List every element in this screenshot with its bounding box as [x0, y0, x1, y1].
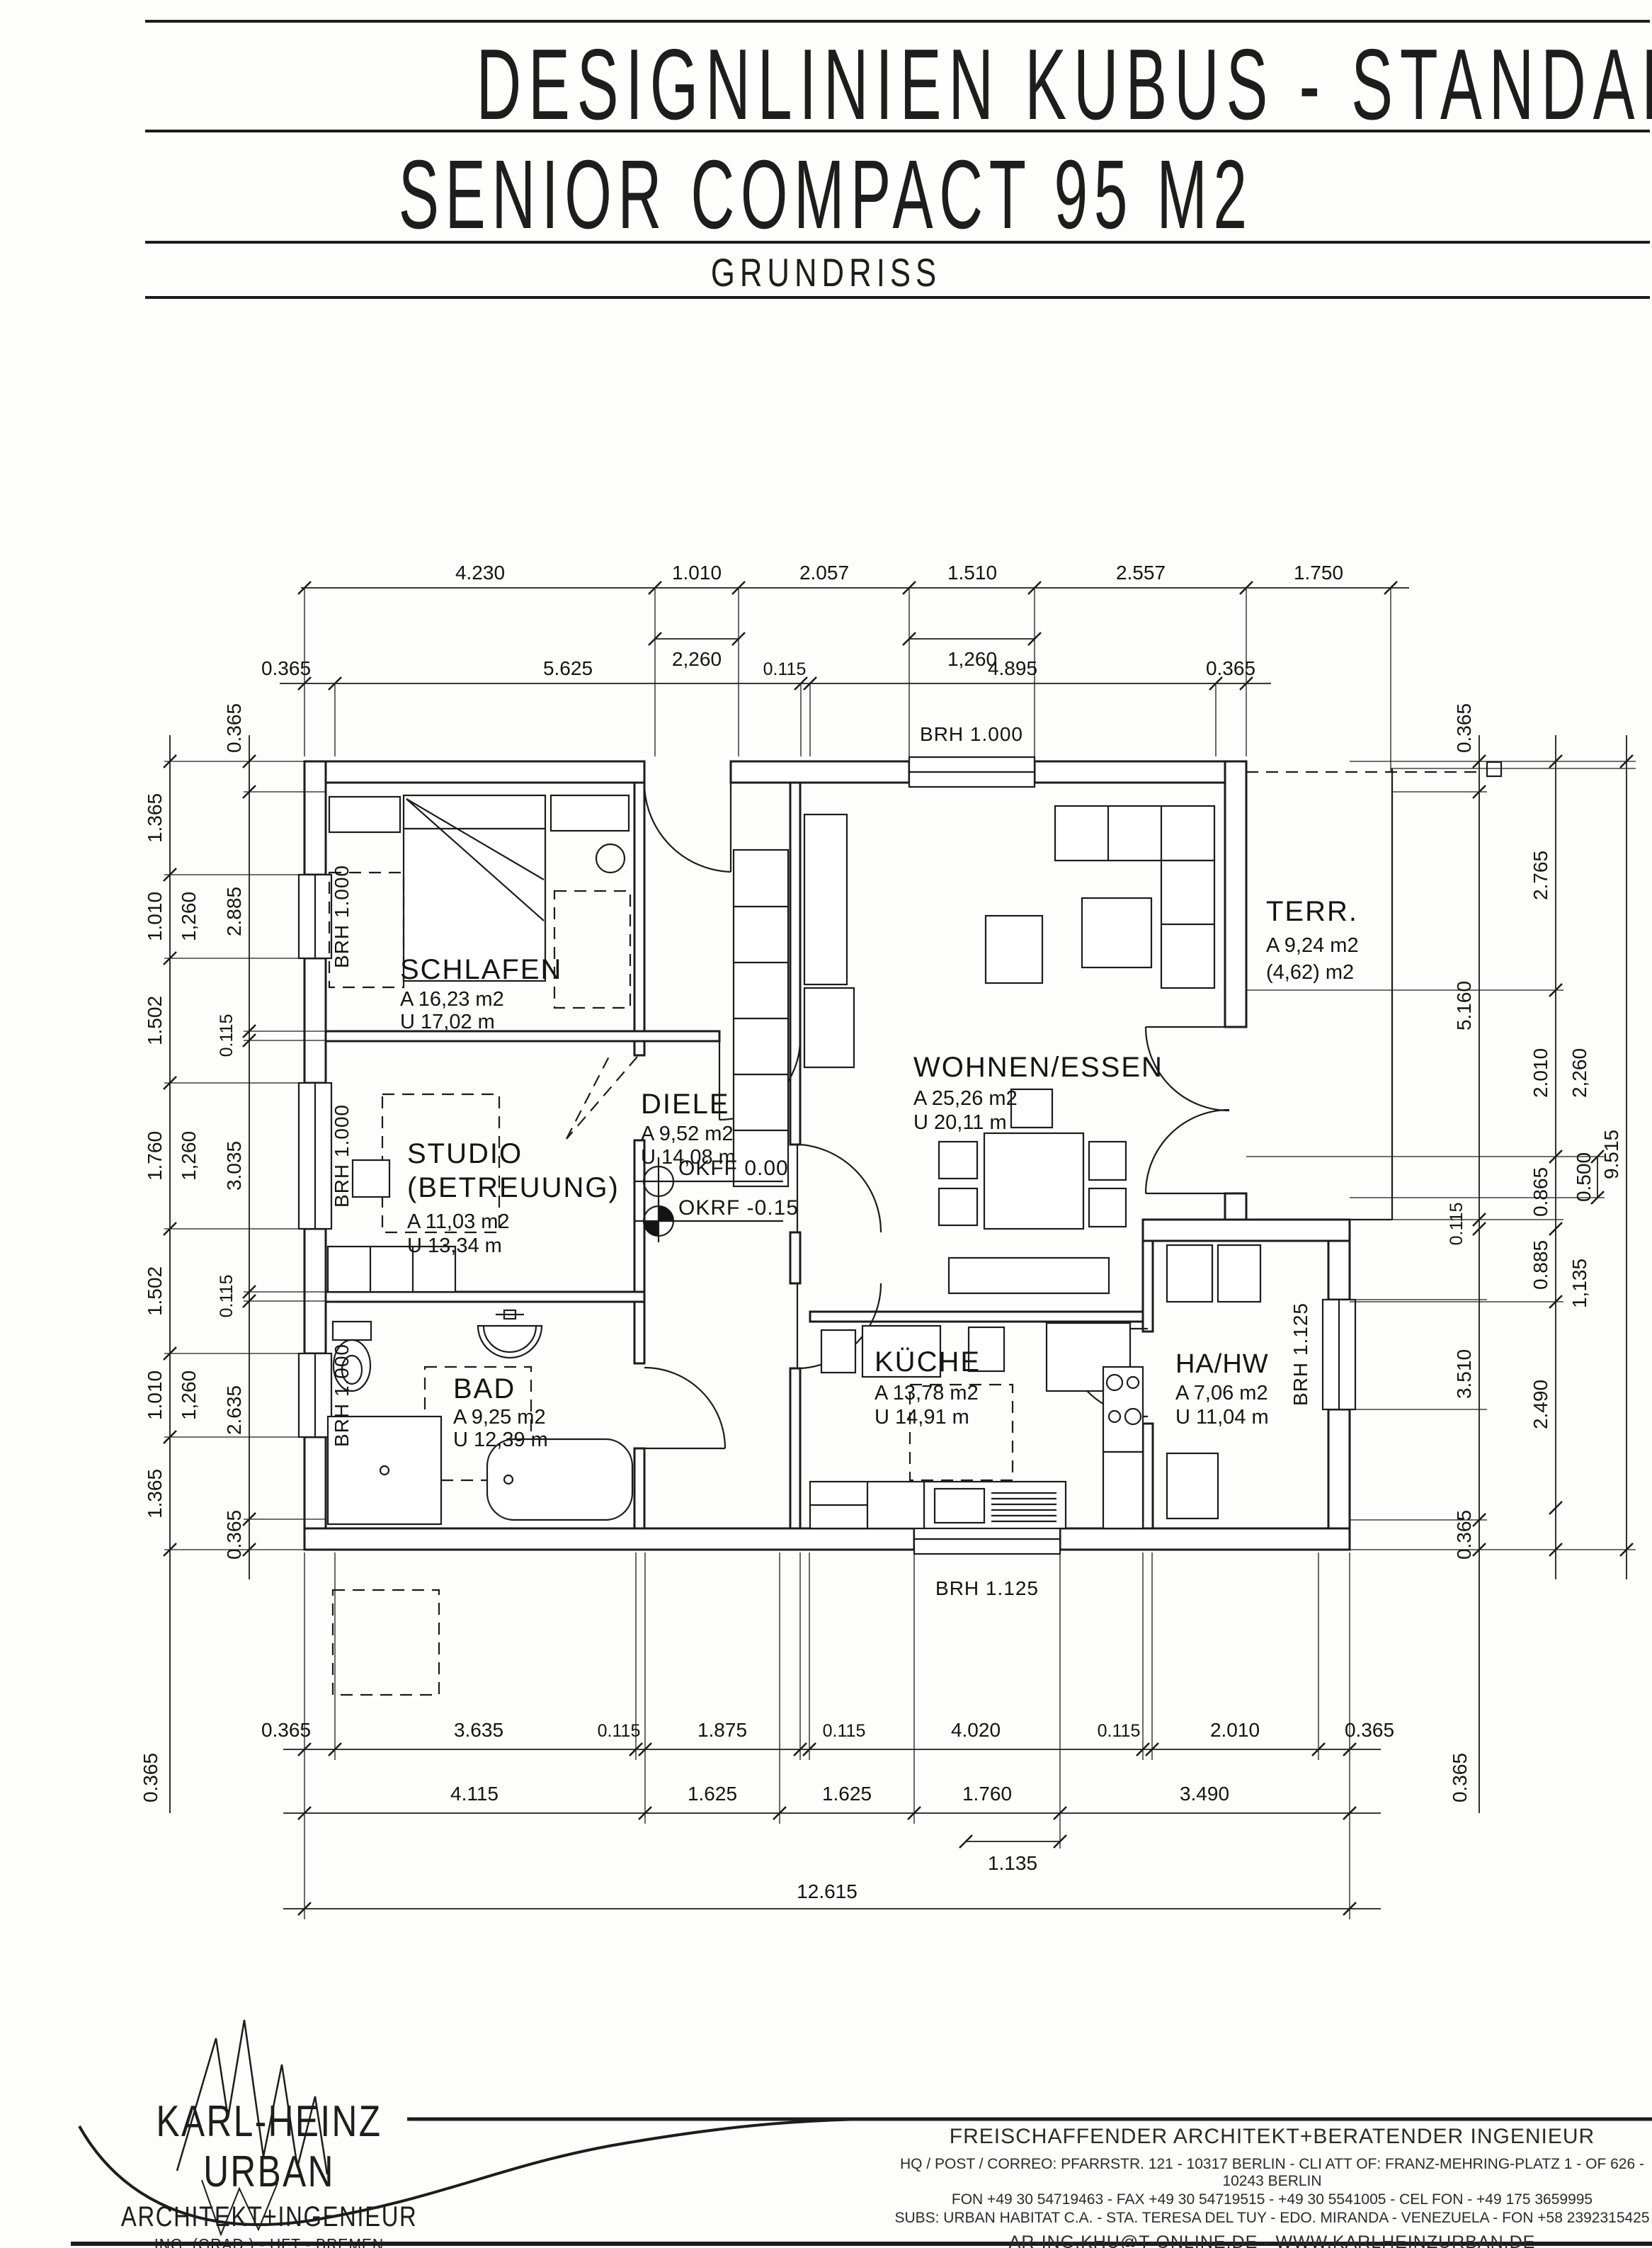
room-perimeter: U 14,91 m: [875, 1406, 969, 1429]
wohnen-door: [797, 1145, 881, 1232]
window-wohnen-top: [909, 757, 1035, 787]
chair: [939, 1142, 977, 1179]
dim: 1.875: [697, 1719, 747, 1741]
dim: 3.490: [1180, 1783, 1229, 1805]
nightstand: [329, 797, 400, 832]
dim: 1.510: [947, 562, 997, 584]
office-headline: FREISCHAFFENDER ARCHITEKT+BERATENDER ING…: [892, 2125, 1652, 2149]
sideboard: [949, 1258, 1109, 1293]
office-info-block: FREISCHAFFENDER ARCHITEKT+BERATENDER ING…: [892, 2125, 1652, 2248]
drawing-type-label: GRUNDRISS: [0, 249, 1652, 295]
room-area: A 9,24 m2: [1266, 934, 1359, 957]
dim: 4.230: [455, 562, 505, 584]
room-perimeter: U 20,11 m: [913, 1111, 1007, 1134]
studio-folding-door: [566, 1057, 637, 1139]
dim: 1,260: [178, 1131, 200, 1181]
dim: 1.625: [822, 1783, 872, 1805]
dim: 2.010: [1210, 1719, 1260, 1741]
dim: 3.035: [223, 1141, 245, 1191]
dining-set: [939, 1089, 1126, 1229]
lamp: [596, 844, 625, 873]
room-name: DIELE: [641, 1089, 730, 1120]
dim: 4.115: [450, 1783, 499, 1805]
dim: 3.635: [454, 1719, 503, 1741]
dim: 1.010: [144, 892, 166, 941]
okrf-marker: OKRF -0.15: [634, 1196, 799, 1242]
room-area: A 16,23 m2: [400, 988, 504, 1011]
dim: 0.365: [1453, 1510, 1475, 1560]
sheet-subtitle: SENIOR COMPACT 95 M2: [0, 139, 1652, 251]
dim: 2,260: [1568, 1048, 1590, 1098]
chair: [1089, 1142, 1126, 1180]
sill-label: BRH 1.125: [935, 1577, 1039, 1599]
dim: 1.135: [988, 1852, 1037, 1874]
room-name: HA/HW: [1175, 1349, 1269, 1379]
office-phone: FON +49 30 54719463 - FAX +49 30 5471951…: [892, 2191, 1652, 2208]
dim: 2.557: [1116, 562, 1166, 584]
dim: 1.502: [144, 996, 166, 1045]
dim: 0.365: [223, 1510, 245, 1560]
appliance: [1218, 1245, 1260, 1302]
dim: 0.115: [598, 1721, 641, 1741]
room-name: WOHNEN/ESSEN: [913, 1052, 1163, 1083]
dim: 0.365: [261, 657, 311, 679]
dim: 0.365: [1449, 1753, 1471, 1803]
dim: 1.760: [144, 1131, 166, 1181]
room-area: A 25,26 m2: [913, 1087, 1018, 1110]
sill-label: BRH 1.125: [1289, 1302, 1311, 1406]
window-hahw-right: [1323, 1300, 1355, 1409]
architect-name: KARL-HEINZ URBAN: [88, 2096, 450, 2197]
dim: 0.365: [261, 1719, 311, 1741]
dim: 0.365: [223, 703, 245, 753]
room-name: BAD: [453, 1373, 515, 1404]
dim: 1.760: [962, 1783, 1012, 1805]
dim: 1.010: [672, 562, 722, 584]
room-name: TERR.: [1266, 896, 1358, 927]
chair: [1089, 1188, 1126, 1227]
dim: 2.765: [1529, 851, 1551, 900]
roof-marker: [1487, 762, 1501, 776]
dim: 1.365: [144, 1469, 166, 1518]
dim: 2.010: [1529, 1048, 1551, 1098]
room-area: A 9,25 m2: [453, 1406, 546, 1429]
armchair: [986, 916, 1042, 983]
architect-logo-block: KARL-HEINZ URBAN ARCHITEKT+INGENIEUR ING…: [42, 2096, 496, 2248]
counter: [1103, 1452, 1143, 1528]
bathtub: [487, 1439, 632, 1520]
okff-label: OKFF 0.00: [678, 1157, 789, 1180]
room-name2: (BETREUUNG): [407, 1172, 620, 1203]
office-subsidiary: SUBS: URBAN HABITAT C.A. - STA. TERESA D…: [892, 2210, 1652, 2227]
dim: 1.625: [688, 1783, 737, 1805]
dim: 2,260: [672, 648, 722, 670]
dim: 0.885: [1529, 1240, 1551, 1290]
dim: 1,260: [178, 892, 200, 941]
window-studio: [299, 1083, 331, 1229]
diele-furniture: [734, 850, 788, 1186]
stove: [1103, 1367, 1143, 1452]
room-area: A 7,06 m2: [1175, 1382, 1268, 1404]
room-perimeter: U 17,02 m: [400, 1011, 495, 1033]
dim: 0.115: [217, 1275, 237, 1318]
dim: 12.615: [797, 1880, 858, 1902]
sill-label: BRH 1.000: [920, 723, 1023, 745]
bed: [404, 795, 545, 981]
dim: 5.625: [543, 657, 593, 679]
room-area2: (4,62) m2: [1266, 961, 1354, 984]
room-perimeter: U 13,34 m: [407, 1234, 502, 1257]
bad-door: [644, 1368, 725, 1448]
dim: 0.365: [1345, 1719, 1394, 1741]
dim: 1.750: [1294, 562, 1343, 584]
dim: 4.020: [951, 1719, 1001, 1741]
dim: 1.502: [144, 1266, 166, 1316]
okrf-label: OKRF -0.15: [678, 1196, 799, 1220]
tv-board: [804, 814, 854, 1067]
dim: 2.057: [799, 562, 849, 584]
counter-left: [810, 1482, 924, 1528]
dim: 2.635: [223, 1385, 245, 1435]
room-name: KÜCHE: [875, 1346, 981, 1378]
sill-label: BRH 1.000: [331, 865, 353, 968]
sill-label: BRH 1.000: [331, 1344, 353, 1447]
coffee-table: [1082, 898, 1151, 967]
chair: [353, 1160, 389, 1197]
dim: 0.115: [1447, 1203, 1466, 1246]
dim: 0.365: [1206, 657, 1255, 679]
dim: 0.365: [1453, 703, 1475, 753]
office-web: AR-ING.KHU@T-ONLINE.DE - WWW.KARLHEINZUR…: [892, 2232, 1652, 2248]
room-name: SCHLAFEN: [400, 954, 562, 985]
credential-line: ING. (GRAD.) - HFT - BREMEN: [61, 2235, 478, 2248]
dim: 1.365: [144, 793, 166, 843]
room-area: A 9,52 m2: [641, 1123, 734, 1145]
room-area: A 11,03 m2: [407, 1210, 510, 1233]
entry-door: [644, 783, 731, 872]
dim: 1,135: [1568, 1259, 1590, 1308]
room-name: STUDIO: [407, 1138, 523, 1169]
room-perimeter: U 12,39 m: [453, 1429, 548, 1451]
cabinet: [1167, 1453, 1218, 1518]
dim: 1,260: [178, 1370, 200, 1420]
dim: 0.500: [1573, 1152, 1595, 1202]
floor-plan-svg: SCHLAFEN A 16,23 m2 U 17,02 m STUDIO (BE…: [0, 0, 1652, 2248]
dim: 2.490: [1529, 1380, 1551, 1429]
drawing-sheet: DESIGNLINIEN KUBUS - STANDARD - NEON SEN…: [0, 0, 1652, 2248]
window-bad: [299, 1353, 331, 1437]
dim: 0.365: [139, 1753, 161, 1803]
dim: 0.115: [1098, 1721, 1141, 1741]
dim: 0.115: [217, 1014, 237, 1057]
drawing-type-text: GRUNDRISS: [711, 249, 941, 295]
dim: 5.160: [1453, 981, 1475, 1031]
counter: [821, 1330, 855, 1373]
dim: 0.865: [1529, 1167, 1551, 1217]
office-address: HQ / POST / CORREO: PFARRSTR. 121 - 1031…: [892, 2156, 1652, 2190]
dining-table: [984, 1133, 1083, 1229]
dim: 2.885: [223, 887, 245, 936]
shelf: [551, 795, 629, 831]
room-area: A 13,78 m2: [875, 1382, 979, 1404]
architect-title: ARCHITEKT+INGENIEUR: [121, 2201, 417, 2233]
exterior-unit-dashed: [333, 1590, 439, 1695]
dim: 0.115: [823, 1721, 866, 1741]
washbasin: [478, 1310, 542, 1358]
appliance: [1167, 1245, 1212, 1302]
hall-closet: [734, 850, 788, 1186]
sheet-subtitle-text: SENIOR COMPACT 95 M2: [399, 139, 1253, 251]
dim: 0.115: [763, 659, 807, 679]
dim: 3.510: [1453, 1349, 1475, 1399]
window-schlafen: [299, 875, 331, 958]
sheet-title-text: DESIGNLINIEN KUBUS - STANDARD - NEON: [477, 27, 1652, 143]
dim: 4.895: [988, 657, 1037, 679]
room-perimeter: U 11,04 m: [1175, 1406, 1269, 1429]
sheet-title: DESIGNLINIEN KUBUS - STANDARD - NEON: [0, 27, 1652, 143]
level-markers: OKFF 0.00 OKRF -0.15: [634, 1157, 799, 1242]
chair: [939, 1188, 977, 1225]
dim: 9.515: [1600, 1130, 1622, 1179]
sink-counter: [924, 1482, 1066, 1528]
sill-label: BRH 1.000: [331, 1104, 353, 1208]
dim: 1.010: [144, 1370, 166, 1420]
wardrobe-dashed: [554, 891, 630, 1008]
